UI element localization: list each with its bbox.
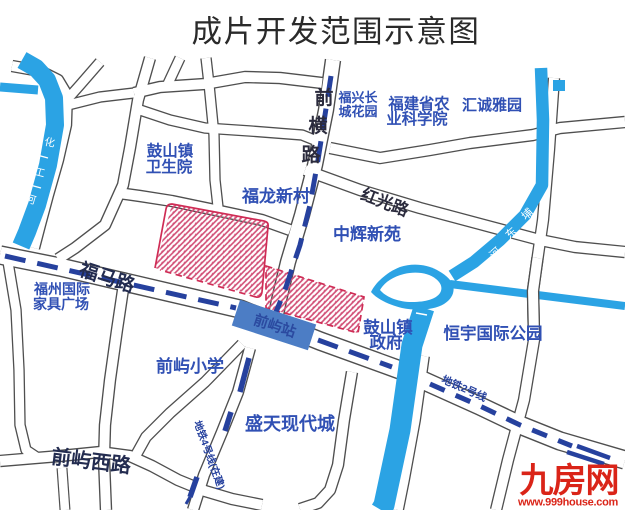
svg-text:政府: 政府 xyxy=(370,332,404,352)
svg-text:福州国际: 福州国际 xyxy=(33,281,90,297)
svg-text:www.999house.com: www.999house.com xyxy=(517,497,618,509)
svg-text:卫生院: 卫生院 xyxy=(146,157,193,176)
svg-text:汇诚雅园: 汇诚雅园 xyxy=(462,96,522,114)
svg-text:福兴长: 福兴长 xyxy=(337,90,378,105)
svg-text:业科学院: 业科学院 xyxy=(386,110,448,128)
svg-text:横: 横 xyxy=(308,114,328,137)
svg-text:前屿小学: 前屿小学 xyxy=(156,356,224,376)
svg-text:前: 前 xyxy=(314,86,333,109)
svg-text:中辉新苑: 中辉新苑 xyxy=(333,224,401,244)
svg-text:恒宇国际公园: 恒宇国际公园 xyxy=(444,323,543,343)
svg-text:成片开发范围示意图: 成片开发范围示意图 xyxy=(192,15,481,49)
svg-text:城花园: 城花园 xyxy=(338,104,377,119)
svg-text:福龙新村: 福龙新村 xyxy=(241,186,310,206)
svg-text:鼓山镇: 鼓山镇 xyxy=(147,141,194,160)
svg-text:九房网: 九房网 xyxy=(520,462,619,500)
svg-text:路: 路 xyxy=(301,143,321,166)
svg-text:盛天现代城: 盛天现代城 xyxy=(245,413,335,434)
svg-text:家具广场: 家具广场 xyxy=(33,296,89,312)
